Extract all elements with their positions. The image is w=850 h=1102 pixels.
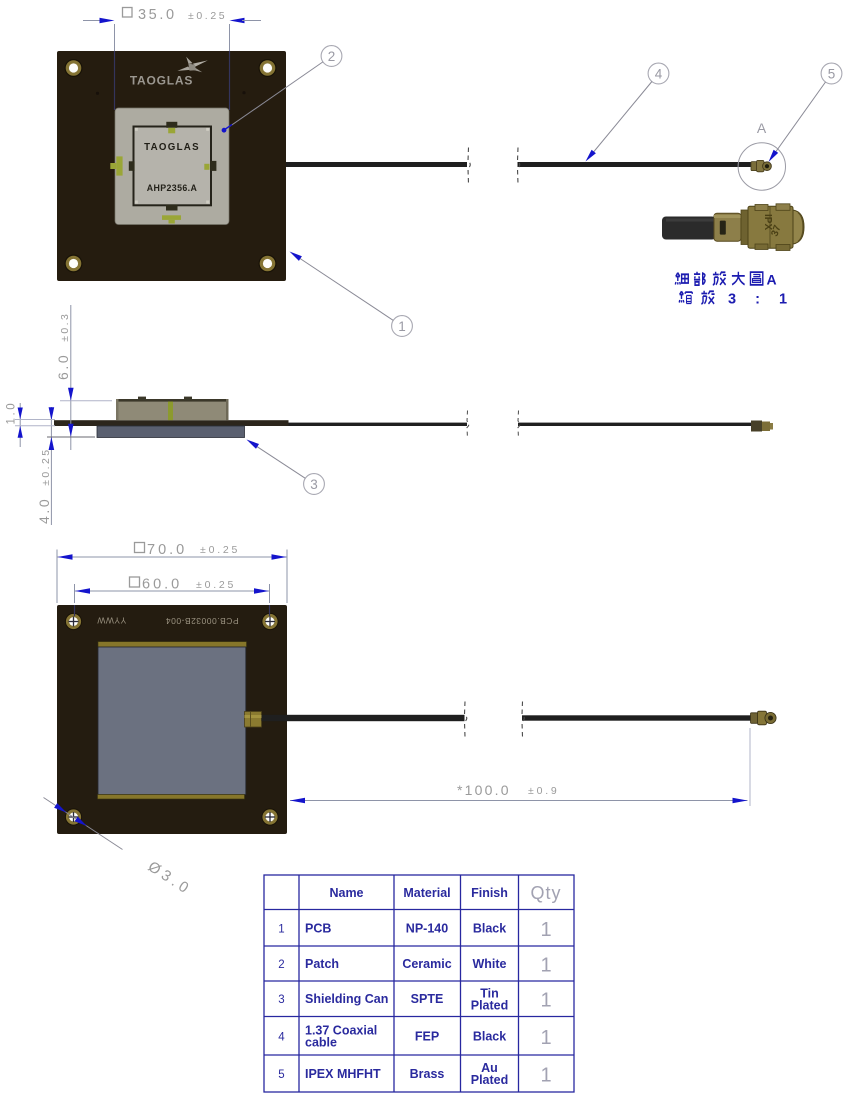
svg-text:Material: Material <box>403 886 450 900</box>
svg-text:±0.25: ±0.25 <box>200 544 240 556</box>
svg-text:±0.25: ±0.25 <box>188 10 227 22</box>
svg-text:4: 4 <box>655 67 663 82</box>
svg-text:TAOGLAS: TAOGLAS <box>130 74 193 88</box>
svg-text:5: 5 <box>828 67 836 82</box>
svg-text:±0.25: ±0.25 <box>196 579 236 591</box>
svg-text:*100.0: *100.0 <box>457 782 511 798</box>
svg-text:AHP2356.A: AHP2356.A <box>147 183 198 193</box>
svg-text:3 : 1: 3 : 1 <box>728 292 795 308</box>
svg-text:NP-140: NP-140 <box>406 922 448 936</box>
svg-text:cable: cable <box>305 1036 337 1050</box>
svg-text:5: 5 <box>278 1069 284 1081</box>
svg-text:Black: Black <box>473 922 506 936</box>
svg-text:Name: Name <box>329 886 363 900</box>
svg-text:1.0: 1.0 <box>6 401 18 425</box>
svg-text:3: 3 <box>310 477 318 492</box>
svg-text:Ceramic: Ceramic <box>402 957 451 971</box>
svg-text:SPTE: SPTE <box>411 992 444 1006</box>
svg-text:6.0±0.3: 6.0±0.3 <box>55 312 71 380</box>
svg-text:3: 3 <box>278 994 284 1006</box>
svg-text:4.0±0.25: 4.0±0.25 <box>36 448 52 524</box>
svg-text:Shielding Can: Shielding Can <box>305 992 388 1006</box>
svg-text:60.0: 60.0 <box>142 577 182 593</box>
svg-text:PCB: PCB <box>305 922 331 936</box>
svg-text:A: A <box>767 272 777 288</box>
svg-text:Plated: Plated <box>471 1073 509 1087</box>
svg-text:Plated: Plated <box>471 999 509 1013</box>
svg-text:FEP: FEP <box>415 1030 439 1044</box>
svg-text:2: 2 <box>328 49 336 64</box>
svg-text:4: 4 <box>278 1032 285 1044</box>
svg-text:2: 2 <box>278 959 284 971</box>
svg-text:YYWW: YYWW <box>97 616 126 626</box>
svg-text:1: 1 <box>540 1065 551 1087</box>
svg-text:1: 1 <box>540 919 551 941</box>
svg-text:Patch: Patch <box>305 957 339 971</box>
svg-text:1: 1 <box>278 924 284 936</box>
svg-text:Brass: Brass <box>410 1067 445 1081</box>
svg-text:Black: Black <box>473 1030 506 1044</box>
svg-text:±0.9: ±0.9 <box>528 785 560 797</box>
svg-text:Ø3.0: Ø3.0 <box>145 858 195 899</box>
svg-text:Qty: Qty <box>530 883 561 903</box>
svg-text:1: 1 <box>540 955 551 977</box>
svg-text:1: 1 <box>540 990 551 1012</box>
svg-text:IPEX MHFHT: IPEX MHFHT <box>305 1067 381 1081</box>
svg-text:PCB.00032B-004: PCB.00032B-004 <box>165 616 238 626</box>
svg-text:TAOGLAS: TAOGLAS <box>144 142 200 153</box>
svg-text:1: 1 <box>398 319 406 334</box>
svg-text:White: White <box>472 957 506 971</box>
svg-text:A: A <box>757 120 767 136</box>
svg-text:1: 1 <box>540 1027 551 1049</box>
svg-text:70.0: 70.0 <box>147 542 187 558</box>
svg-text:Finish: Finish <box>471 886 508 900</box>
svg-text:35.0: 35.0 <box>138 7 177 23</box>
